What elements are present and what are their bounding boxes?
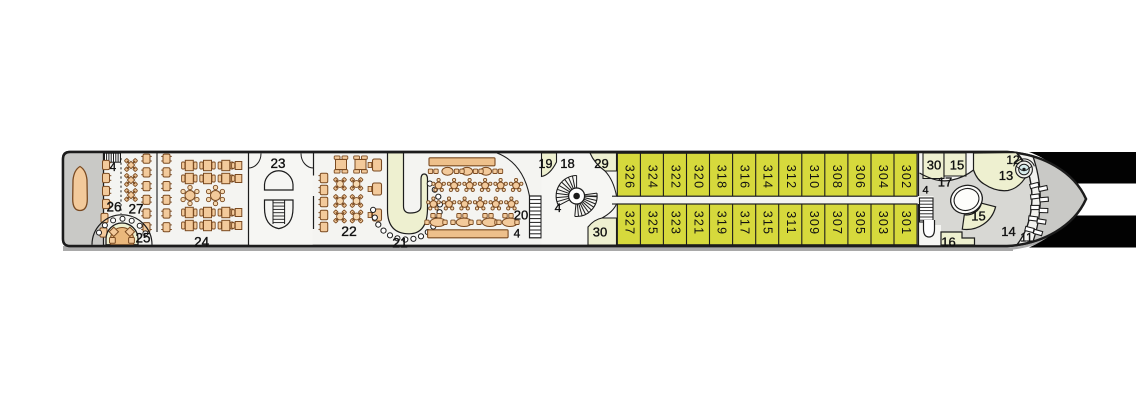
svg-text:317: 317: [738, 211, 752, 235]
svg-text:322: 322: [668, 165, 682, 189]
svg-text:17: 17: [938, 175, 952, 190]
svg-text:323: 323: [668, 211, 682, 235]
svg-text:321: 321: [692, 211, 706, 235]
svg-text:4: 4: [555, 201, 562, 215]
svg-text:20: 20: [514, 208, 528, 223]
svg-text:22: 22: [341, 223, 357, 239]
svg-text:13: 13: [999, 168, 1013, 183]
svg-text:4: 4: [110, 162, 117, 174]
svg-text:16: 16: [941, 235, 955, 250]
svg-text:12: 12: [1006, 153, 1020, 167]
svg-text:18: 18: [560, 156, 574, 171]
svg-text:26: 26: [106, 200, 121, 215]
svg-text:15: 15: [971, 209, 985, 224]
svg-text:25: 25: [135, 231, 150, 246]
svg-text:310: 310: [807, 165, 821, 189]
svg-text:302: 302: [899, 165, 913, 189]
svg-text:304: 304: [876, 165, 890, 189]
svg-text:312: 312: [784, 165, 798, 189]
svg-text:309: 309: [807, 211, 821, 235]
svg-text:326: 326: [622, 165, 636, 189]
svg-text:14: 14: [1001, 224, 1015, 239]
svg-text:327: 327: [622, 211, 636, 235]
svg-text:316: 316: [738, 165, 752, 189]
svg-text:318: 318: [715, 165, 729, 189]
svg-text:320: 320: [692, 165, 706, 189]
svg-text:315: 315: [761, 211, 775, 235]
svg-text:23: 23: [270, 156, 285, 171]
svg-text:24: 24: [194, 235, 210, 250]
svg-text:19: 19: [539, 157, 553, 171]
svg-text:305: 305: [853, 211, 867, 235]
svg-text:4: 4: [922, 185, 928, 197]
svg-text:11: 11: [1020, 231, 1033, 245]
svg-text:30: 30: [593, 225, 607, 240]
svg-text:4: 4: [514, 227, 521, 241]
svg-text:29: 29: [594, 156, 608, 171]
svg-text:30: 30: [927, 158, 941, 173]
svg-text:27: 27: [128, 202, 143, 217]
svg-text:325: 325: [645, 211, 659, 235]
svg-text:303: 303: [876, 211, 890, 235]
svg-text:21: 21: [392, 235, 408, 251]
svg-text:319: 319: [715, 211, 729, 235]
svg-text:301: 301: [899, 211, 913, 235]
svg-text:311: 311: [784, 211, 798, 235]
svg-text:306: 306: [853, 165, 867, 189]
svg-text:324: 324: [645, 165, 659, 189]
svg-text:307: 307: [830, 211, 844, 235]
svg-text:308: 308: [830, 165, 844, 189]
svg-text:314: 314: [761, 165, 775, 189]
svg-text:15: 15: [950, 158, 964, 173]
